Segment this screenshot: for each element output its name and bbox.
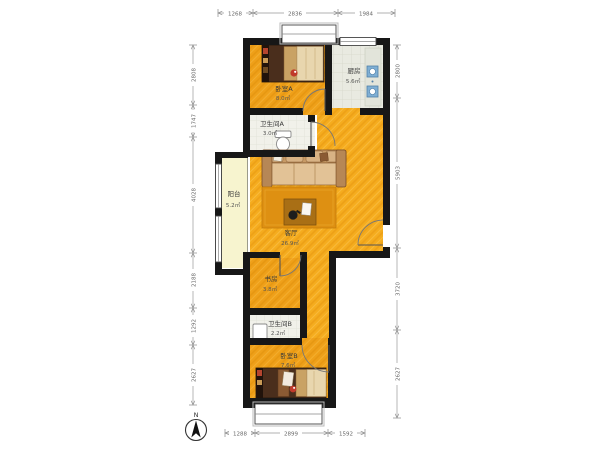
dimension-top: 1268 2836 1984 xyxy=(218,9,395,18)
kitchen-area: 5.6㎡ xyxy=(346,77,361,85)
kitchen-counter xyxy=(365,48,381,106)
bedroom-b-door-gap xyxy=(302,338,328,345)
balcony-label: 阳台 xyxy=(228,189,241,198)
bedroom-a-label: 卧室A xyxy=(275,84,293,93)
balcony-floor xyxy=(222,158,248,268)
bedroom-a-area: 8.0㎡ xyxy=(276,94,291,102)
toilet-icon xyxy=(275,131,291,151)
bed-b xyxy=(256,368,326,398)
dim-right-4: 2627 xyxy=(396,367,402,381)
dim-left-1: 2808 xyxy=(192,68,198,82)
study-label: 书房 xyxy=(265,274,278,283)
bathroom-a-label: 卫生间A xyxy=(260,119,285,128)
study-area: 3.8㎡ xyxy=(263,285,278,293)
dim-top-3: 1984 xyxy=(359,12,373,18)
floor-plan-drawing: 卧室A 8.0㎡ 厨房 5.6㎡ 卫生间A 3.0㎡ 阳台 5.2㎡ 客厅 26… xyxy=(0,0,600,450)
bathroom-b-label: 卫生间B xyxy=(268,319,292,328)
dim-right-1: 2800 xyxy=(396,64,402,78)
dim-left-3: 4028 xyxy=(192,188,198,202)
dim-top-2: 2836 xyxy=(288,12,302,18)
dim-right-2: 5903 xyxy=(396,166,402,180)
dim-bottom-3: 1592 xyxy=(339,432,353,438)
flower-icon xyxy=(290,69,297,76)
bedroom-b-area: 7.6㎡ xyxy=(281,361,296,369)
study-floor xyxy=(250,258,300,308)
coffee-table-rug xyxy=(262,187,336,228)
dim-bottom-2: 2899 xyxy=(284,432,298,438)
living-room-label: 客厅 xyxy=(285,228,299,237)
bathroom-a-area: 3.0㎡ xyxy=(263,129,278,137)
bedroom-b-label: 卧室B xyxy=(280,351,297,360)
bathroom-b-area: 2.2㎡ xyxy=(271,329,286,337)
dimension-right: 2800 5903 3720 2627 xyxy=(393,45,402,418)
dim-top-1: 1268 xyxy=(228,12,242,18)
magazine-icon xyxy=(301,203,311,216)
dim-left-4: 2188 xyxy=(192,273,198,287)
north-label: N xyxy=(194,411,199,419)
flower-icon xyxy=(290,386,297,393)
dimension-left: 2808 1747 4028 2188 1292 2627 xyxy=(189,45,198,405)
dimension-bottom: 1288 2899 1592 xyxy=(225,429,365,438)
north-arrow-icon: N xyxy=(186,411,207,441)
pillow-icon xyxy=(282,371,294,386)
living-room-area: 26.9㎡ xyxy=(281,239,299,247)
dim-bottom-1: 1288 xyxy=(233,432,247,438)
dim-left-6: 2627 xyxy=(192,368,198,382)
balcony-area: 5.2㎡ xyxy=(226,201,241,209)
kettle-icon xyxy=(288,210,297,219)
dim-right-3: 3720 xyxy=(396,282,402,296)
floor-plan-canvas: 卧室A 8.0㎡ 厨房 5.6㎡ 卫生间A 3.0㎡ 阳台 5.2㎡ 客厅 26… xyxy=(0,0,600,450)
pillow-icon xyxy=(320,153,329,162)
kitchen-door-gap xyxy=(332,108,360,115)
bedroom-a-door-gap xyxy=(303,108,325,115)
bed-a xyxy=(262,45,324,82)
dim-left-5: 1292 xyxy=(192,319,198,333)
dim-left-2: 1747 xyxy=(192,114,198,128)
kitchen-label: 厨房 xyxy=(348,66,361,75)
